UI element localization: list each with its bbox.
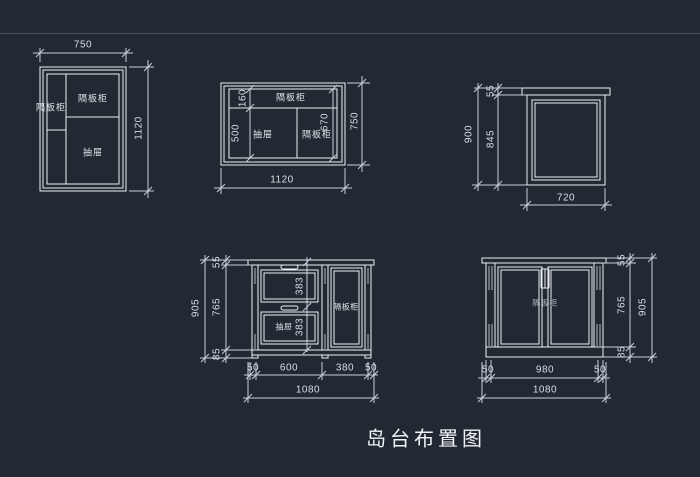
plan-middle-label-top-shelf: 隔板柜 bbox=[276, 91, 306, 104]
plan-left-label-drawer: 抽屉 bbox=[83, 146, 103, 159]
elev-bl-dim-total-width: 1080 bbox=[296, 385, 320, 396]
plan-left-inner-frame bbox=[43, 70, 123, 188]
plan-left-dim-width: 750 bbox=[74, 40, 92, 51]
elev-br-countertop bbox=[482, 258, 606, 263]
elev-bl-leg-left bbox=[252, 355, 258, 358]
elev-tr-dim-total-height: 900 bbox=[464, 125, 475, 143]
elev-tr-dim-body: 845 bbox=[486, 130, 497, 148]
plan-left-outer-frame bbox=[40, 67, 126, 191]
elev-top-right-panel-inner bbox=[535, 103, 597, 177]
elev-top-right-body bbox=[527, 95, 605, 185]
cad-canvas[interactable]: 750 1120 隔板柜 隔板柜 抽屉 160 500 670 隔板柜 抽屉 隔… bbox=[0, 0, 700, 477]
elev-bl-leg-mid bbox=[322, 355, 328, 358]
plan-middle-label-drawer: 抽屉 bbox=[253, 128, 273, 141]
elev-bl-countertop bbox=[248, 260, 374, 265]
elev-tr-dim-width: 720 bbox=[557, 193, 575, 204]
plan-middle-label-right-shelf: 隔板柜 bbox=[302, 128, 332, 141]
cad-linework bbox=[0, 0, 700, 477]
elev-bl-dim-seg2: 600 bbox=[280, 363, 298, 374]
plan-middle-dim-strip: 160 bbox=[238, 89, 249, 107]
elev-bl-dim-drawer-bottom: 383 bbox=[295, 318, 306, 336]
elev-top-right-panel-outer bbox=[532, 100, 600, 180]
elev-bl-drawer-dimension bbox=[303, 257, 311, 354]
elev-bl-dim-seg1: 50 bbox=[247, 363, 259, 374]
elev-br-dim-body: 765 bbox=[617, 296, 628, 314]
elev-br-dim-total-width: 1080 bbox=[533, 385, 557, 396]
elev-br-dim-seg1: 50 bbox=[482, 365, 494, 376]
elev-br-dim-base: 85 bbox=[617, 346, 628, 358]
elev-bl-dim-drawer-top: 383 bbox=[295, 277, 306, 295]
elev-bl-bottom-dimensions bbox=[243, 362, 379, 403]
plan-middle-dim-right: 750 bbox=[350, 112, 361, 130]
elev-bl-dim-counter: 55 bbox=[212, 256, 223, 268]
elev-bl-leg-right bbox=[365, 355, 371, 358]
plan-middle-dim-left-inner: 500 bbox=[231, 124, 242, 142]
elev-br-dim-seg3: 50 bbox=[594, 365, 606, 376]
elev-bl-left-dimensions bbox=[200, 255, 252, 363]
elev-bl-drawer-top-handle bbox=[281, 265, 298, 269]
elev-bl-drawer-top bbox=[261, 270, 318, 302]
elev-bl-label-drawer: 抽屉 bbox=[276, 322, 293, 333]
drawing-title: 岛台布置图 bbox=[366, 423, 486, 452]
elev-br-dim-counter: 55 bbox=[617, 254, 628, 266]
elev-bl-dim-base: 85 bbox=[212, 348, 223, 360]
elev-bl-drawer-bottom-handle bbox=[281, 306, 298, 310]
elev-br-label-shelf: 隔板柜 bbox=[532, 298, 558, 309]
plan-left-content-frame bbox=[47, 74, 119, 184]
elev-br-dim-seg2: 980 bbox=[536, 365, 554, 376]
elev-br-dim-total-height: 905 bbox=[638, 298, 649, 316]
elev-bottom-right-drawing bbox=[477, 253, 657, 403]
elev-top-right-countertop bbox=[522, 88, 610, 95]
plan-left-label-top-shelf: 隔板柜 bbox=[78, 92, 108, 105]
elev-bl-dim-seg4: 50 bbox=[365, 363, 377, 374]
elev-tr-dim-counter: 55 bbox=[486, 85, 497, 97]
plan-left-label-side-shelf: 隔板柜 bbox=[36, 101, 66, 114]
elev-bl-dim-seg3: 380 bbox=[336, 363, 354, 374]
elev-bl-dim-total-height: 905 bbox=[191, 299, 202, 317]
elev-bl-label-shelf: 隔板柜 bbox=[333, 302, 359, 313]
elev-bl-dim-body: 765 bbox=[212, 298, 223, 316]
elev-br-right-dimensions bbox=[603, 253, 657, 363]
plan-left-dim-height: 1120 bbox=[134, 116, 145, 140]
plan-middle-dim-bottom: 1120 bbox=[270, 175, 294, 186]
